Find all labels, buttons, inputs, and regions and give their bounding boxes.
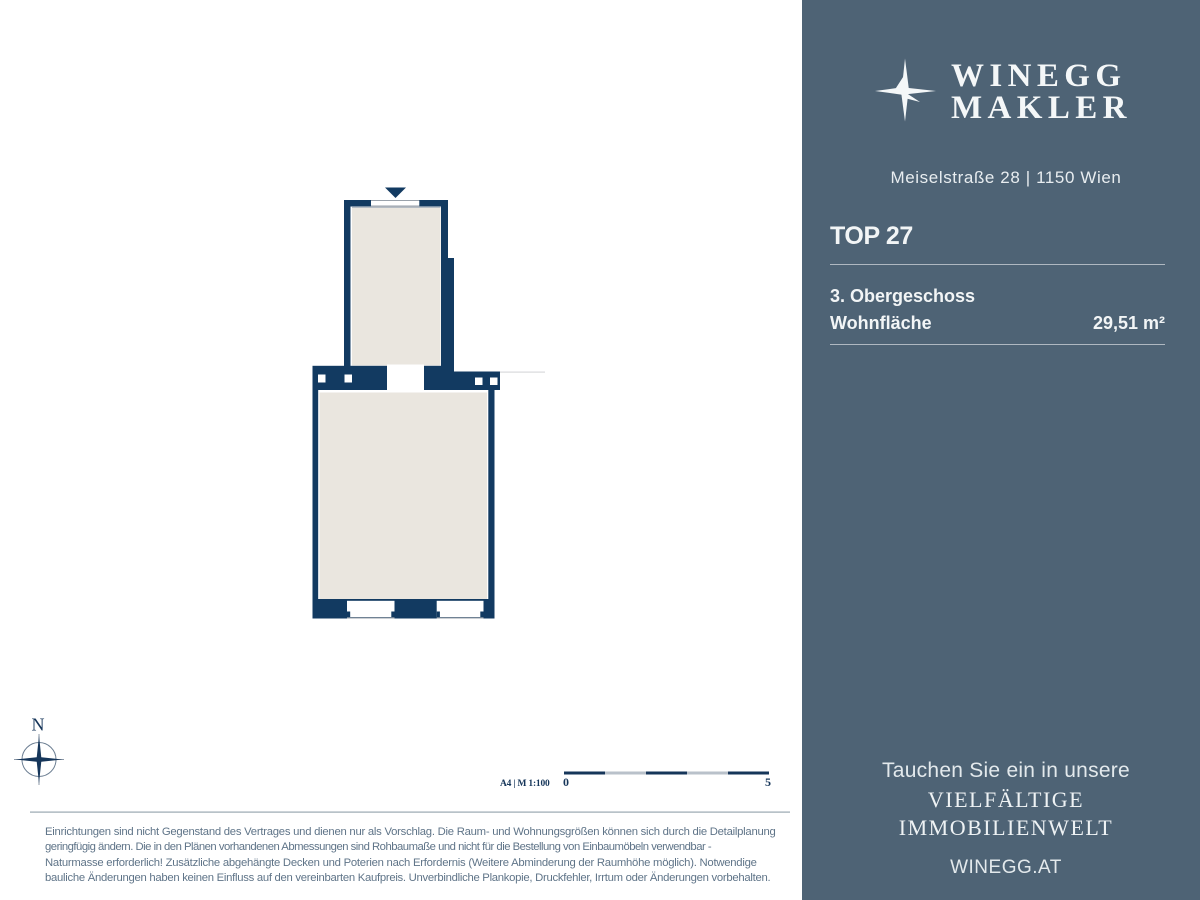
svg-text:5: 5 [765, 775, 771, 789]
svg-text:0: 0 [563, 775, 569, 789]
svg-text:N: N [32, 715, 45, 735]
svg-text:A4 | M 1:100: A4 | M 1:100 [500, 779, 550, 789]
